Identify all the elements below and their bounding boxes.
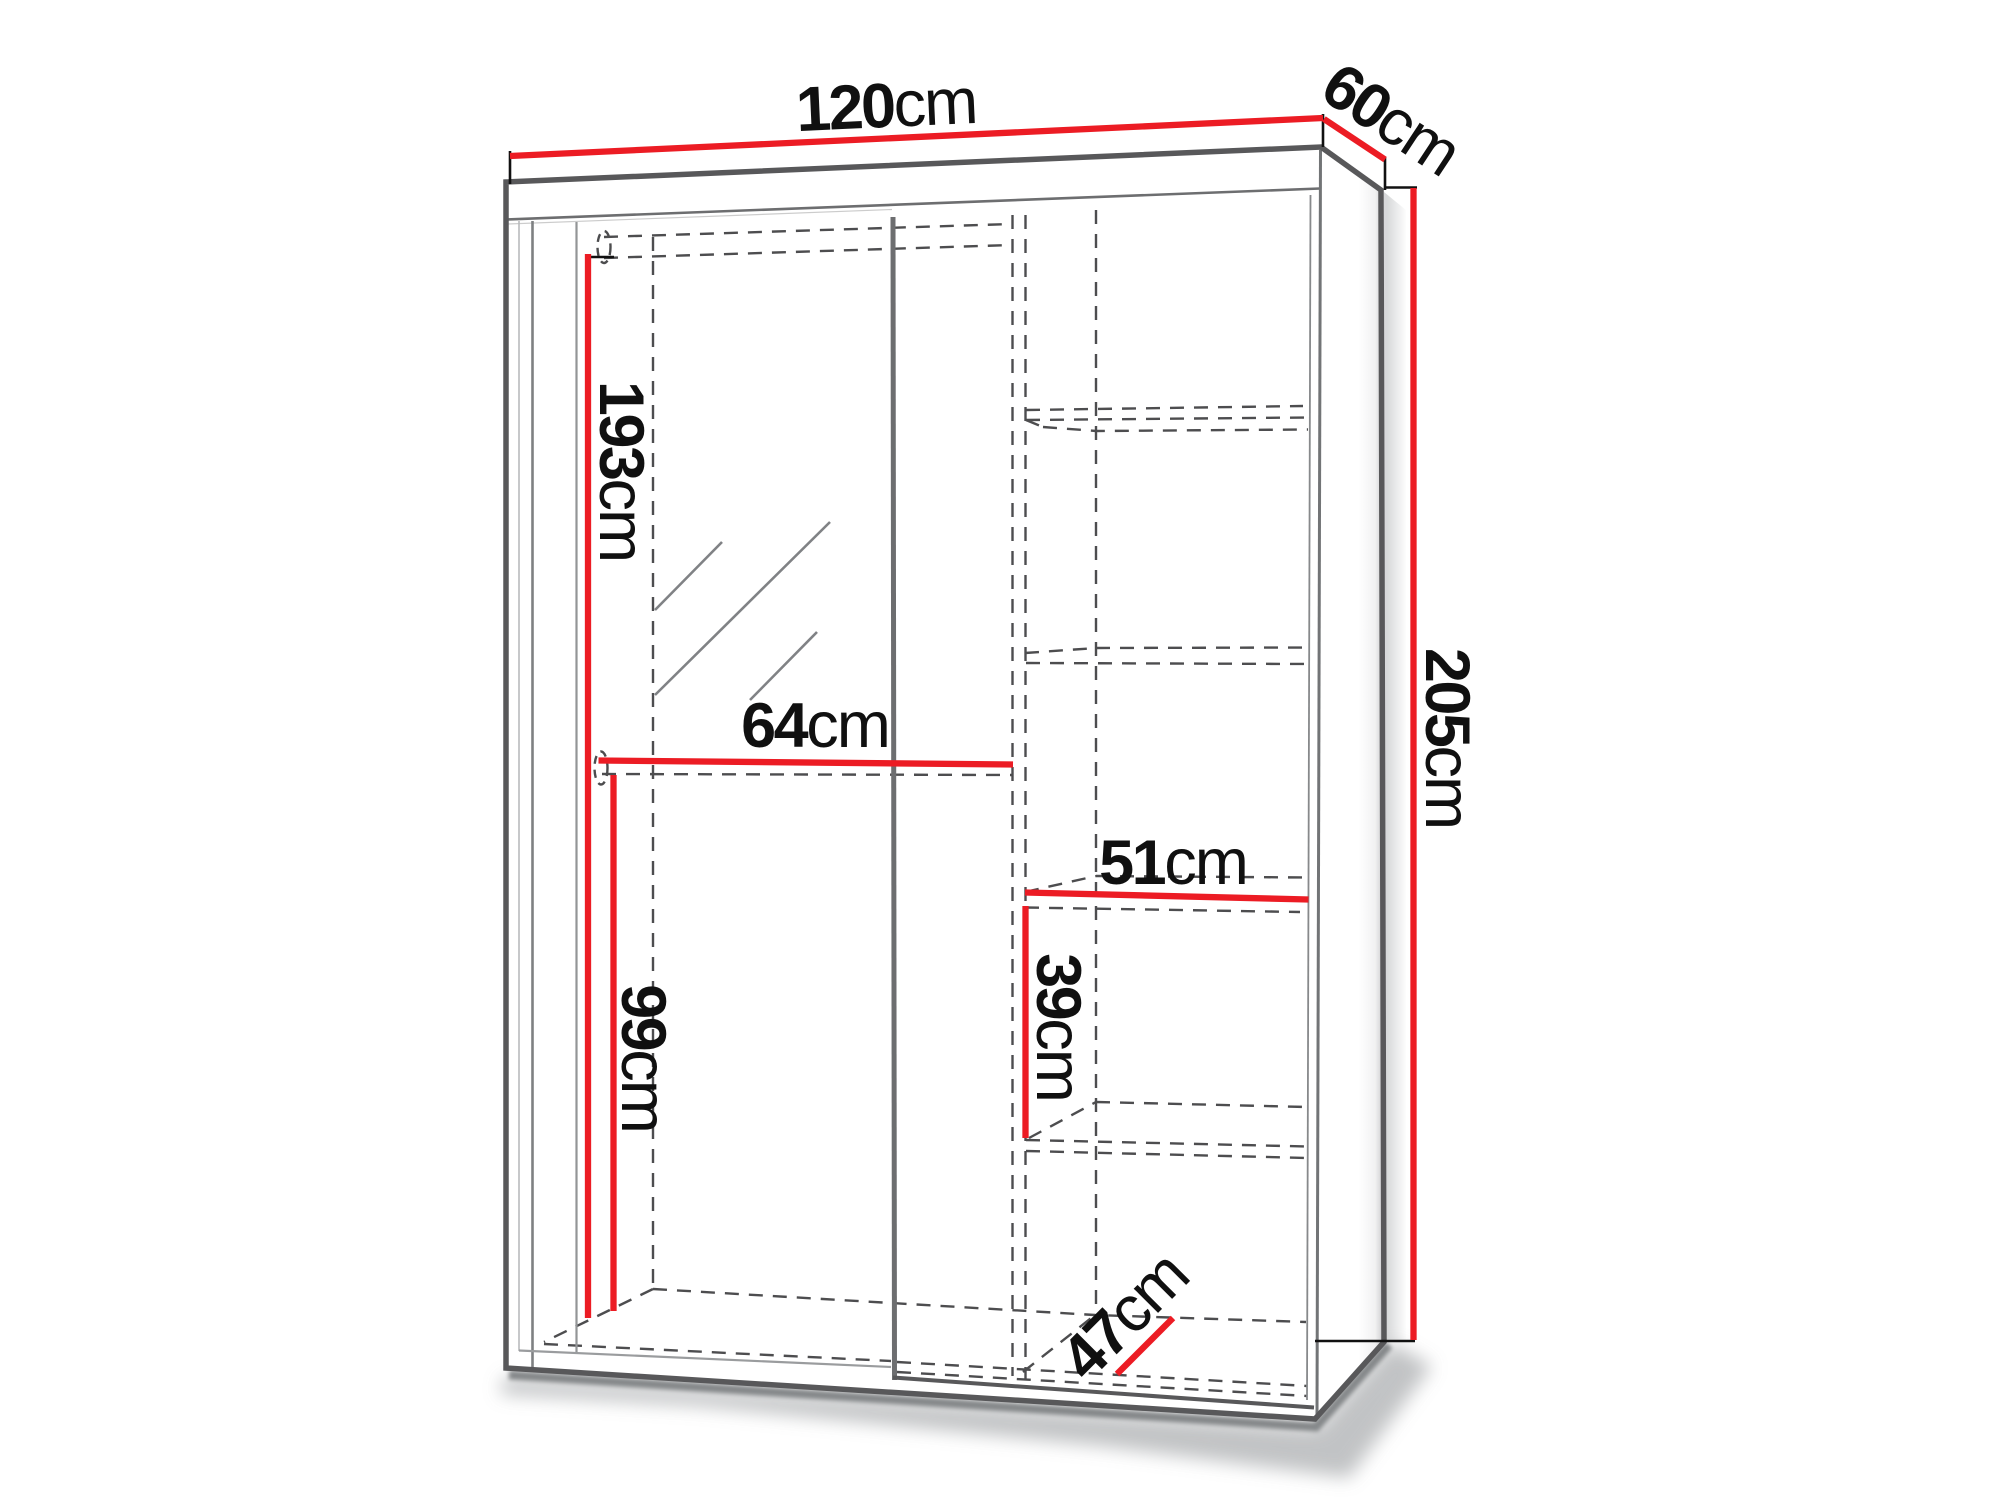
svg-text:64cm: 64cm: [741, 688, 889, 761]
svg-text:205cm: 205cm: [1412, 648, 1485, 828]
svg-text:39cm: 39cm: [1023, 953, 1096, 1101]
svg-text:99cm: 99cm: [608, 984, 681, 1132]
svg-text:120cm: 120cm: [794, 64, 977, 145]
svg-text:193cm: 193cm: [586, 381, 659, 561]
svg-text:51cm: 51cm: [1099, 825, 1247, 898]
